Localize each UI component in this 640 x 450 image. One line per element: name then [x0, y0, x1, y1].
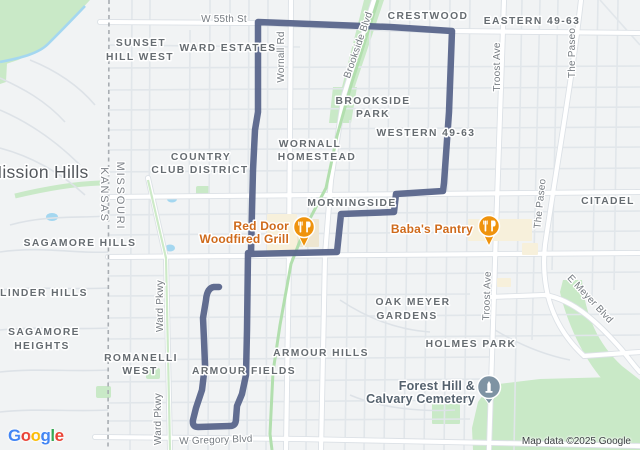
label-western-49-63: WESTERN 49-63	[377, 128, 476, 139]
label-sunset-hill-west: SUNSET	[116, 38, 166, 49]
label-citadel: CITADEL	[581, 196, 635, 207]
svg-text:CLUB DISTRICT: CLUB DISTRICT	[151, 165, 248, 176]
svg-text:PARK: PARK	[356, 109, 390, 120]
label-the-paseo-top: The Paseo	[567, 28, 578, 78]
label-ward-pkwy-bottom: Ward Pkwy	[153, 393, 164, 445]
label-red-door: Red Door	[233, 219, 289, 233]
svg-text:WEST: WEST	[122, 366, 157, 377]
label-missouri: MISSOURI	[114, 162, 126, 231]
label-forest-hill: Forest Hill &	[399, 379, 475, 393]
label-ward-estates: WARD ESTATES	[179, 43, 276, 54]
svg-text:HILL WEST: HILL WEST	[106, 52, 174, 63]
label-crestwood: CRESTWOOD	[388, 11, 469, 22]
label-troost-ave-top: Troost Ave	[492, 42, 503, 91]
label-sagamore-hills: SAGAMORE HILLS	[24, 238, 137, 249]
label-brookside-park: BROOKSIDE	[336, 96, 411, 107]
svg-text:HOMESTEAD: HOMESTEAD	[278, 152, 356, 163]
svg-text:Calvary Cemetery: Calvary Cemetery	[366, 392, 475, 406]
map-viewport[interactable]: SUNSET HILL WEST WARD ESTATES CRESTWOOD …	[0, 0, 640, 450]
svg-text:HEIGHTS: HEIGHTS	[14, 341, 70, 352]
label-morningside: MORNINGSIDE	[307, 198, 396, 209]
svg-text:Woodfired Grill: Woodfired Grill	[200, 232, 289, 246]
label-wornall-homestead: WORNALL	[279, 139, 341, 150]
label-eastern-49-63: EASTERN 49-63	[484, 16, 581, 27]
label-kansas: KANSAS	[98, 167, 110, 222]
label-babas-pantry: Baba's Pantry	[391, 222, 473, 236]
label-country-club-district: COUNTRY	[171, 152, 231, 163]
map-attribution: Map data ©2025 Google	[522, 436, 631, 447]
label-oak-meyer-gardens: OAK MEYER	[376, 297, 451, 308]
label-armour-hills: ARMOUR HILLS	[273, 348, 369, 359]
map-canvas[interactable]: SUNSET HILL WEST WARD ESTATES CRESTWOOD …	[0, 0, 640, 450]
label-mission-hills: Mission Hills	[0, 162, 89, 182]
label-troost-ave-bottom: Troost Ave	[481, 271, 494, 321]
google-logo[interactable]: Google	[8, 426, 64, 446]
label-holmes-park: HOLMES PARK	[426, 339, 517, 350]
label-romanelli-west: ROMANELLI	[104, 353, 178, 364]
label-sagamore-heights: SAGAMORE	[8, 327, 80, 338]
label-armour-fields: ARMOUR FIELDS	[192, 366, 296, 377]
label-linder-hills: LINDER HILLS	[0, 288, 88, 299]
label-wornall-rd: Wornall Rd	[276, 31, 287, 82]
label-w-55th-st: W 55th St	[201, 14, 247, 25]
label-ward-pkwy-top: Ward Pkwy	[155, 280, 166, 332]
svg-text:GARDENS: GARDENS	[376, 311, 437, 322]
